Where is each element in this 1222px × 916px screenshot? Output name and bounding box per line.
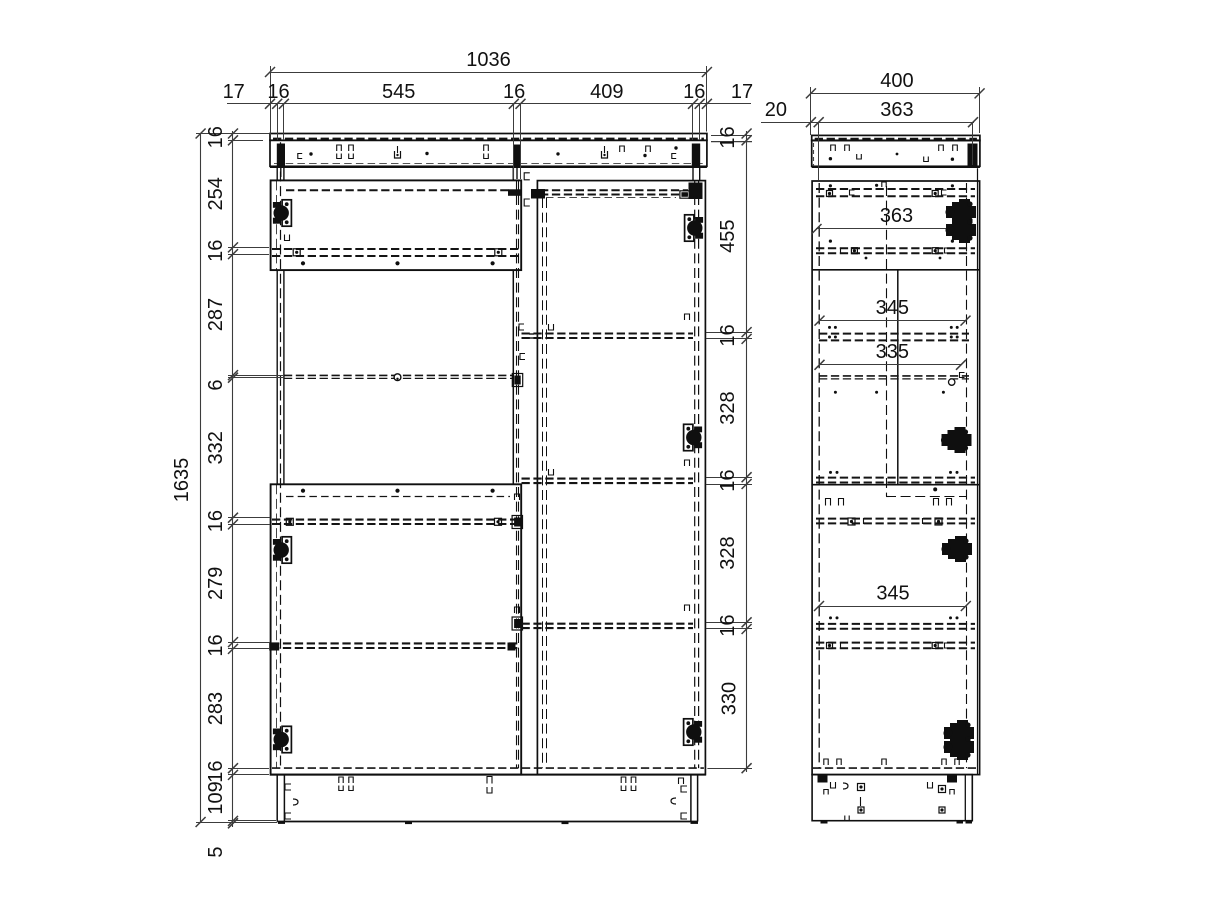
svg-text:20: 20: [765, 99, 787, 121]
svg-text:16: 16: [717, 614, 739, 636]
svg-text:16: 16: [717, 324, 739, 346]
svg-text:328: 328: [717, 536, 739, 569]
svg-text:279: 279: [205, 567, 227, 600]
svg-text:16: 16: [205, 126, 227, 148]
svg-text:335: 335: [876, 341, 909, 363]
svg-text:1036: 1036: [466, 49, 511, 71]
svg-text:17: 17: [731, 81, 753, 103]
svg-text:345: 345: [876, 297, 909, 319]
svg-text:16: 16: [205, 510, 227, 532]
svg-text:400: 400: [880, 70, 913, 92]
svg-text:16: 16: [503, 81, 525, 103]
svg-text:363: 363: [880, 205, 913, 227]
svg-text:16: 16: [205, 760, 227, 782]
svg-text:16: 16: [205, 634, 227, 656]
svg-text:345: 345: [876, 582, 909, 604]
svg-text:330: 330: [719, 682, 741, 715]
svg-text:363: 363: [880, 99, 913, 121]
svg-text:16: 16: [717, 469, 739, 491]
svg-text:16: 16: [717, 126, 739, 148]
svg-text:254: 254: [205, 177, 227, 210]
svg-text:5: 5: [205, 846, 227, 857]
svg-text:332: 332: [205, 431, 227, 464]
svg-text:6: 6: [205, 379, 227, 390]
svg-text:17: 17: [223, 81, 245, 103]
svg-text:455: 455: [717, 220, 739, 253]
svg-text:1635: 1635: [171, 458, 193, 503]
svg-text:109: 109: [205, 781, 227, 814]
svg-text:409: 409: [590, 81, 623, 103]
svg-text:328: 328: [717, 391, 739, 424]
svg-text:283: 283: [205, 692, 227, 725]
svg-text:287: 287: [205, 298, 227, 331]
svg-text:545: 545: [382, 81, 415, 103]
svg-text:16: 16: [267, 81, 289, 103]
svg-text:16: 16: [683, 81, 705, 103]
svg-text:16: 16: [205, 240, 227, 262]
